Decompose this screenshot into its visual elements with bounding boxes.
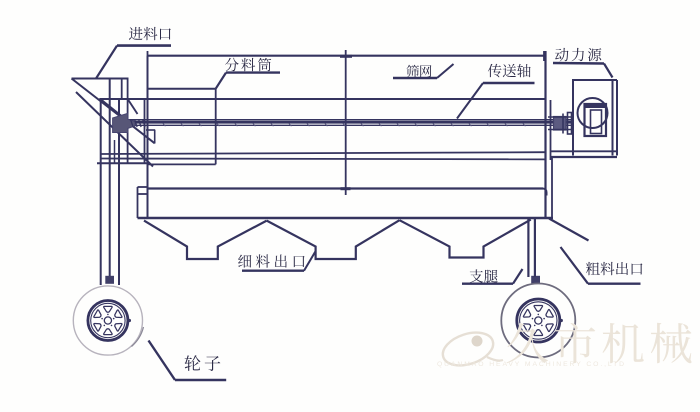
svg-text:QUANMAO HEAVY MACHINERY CO.: QUANMAO HEAVY MACHINERY CO.,LTD — [437, 361, 626, 368]
